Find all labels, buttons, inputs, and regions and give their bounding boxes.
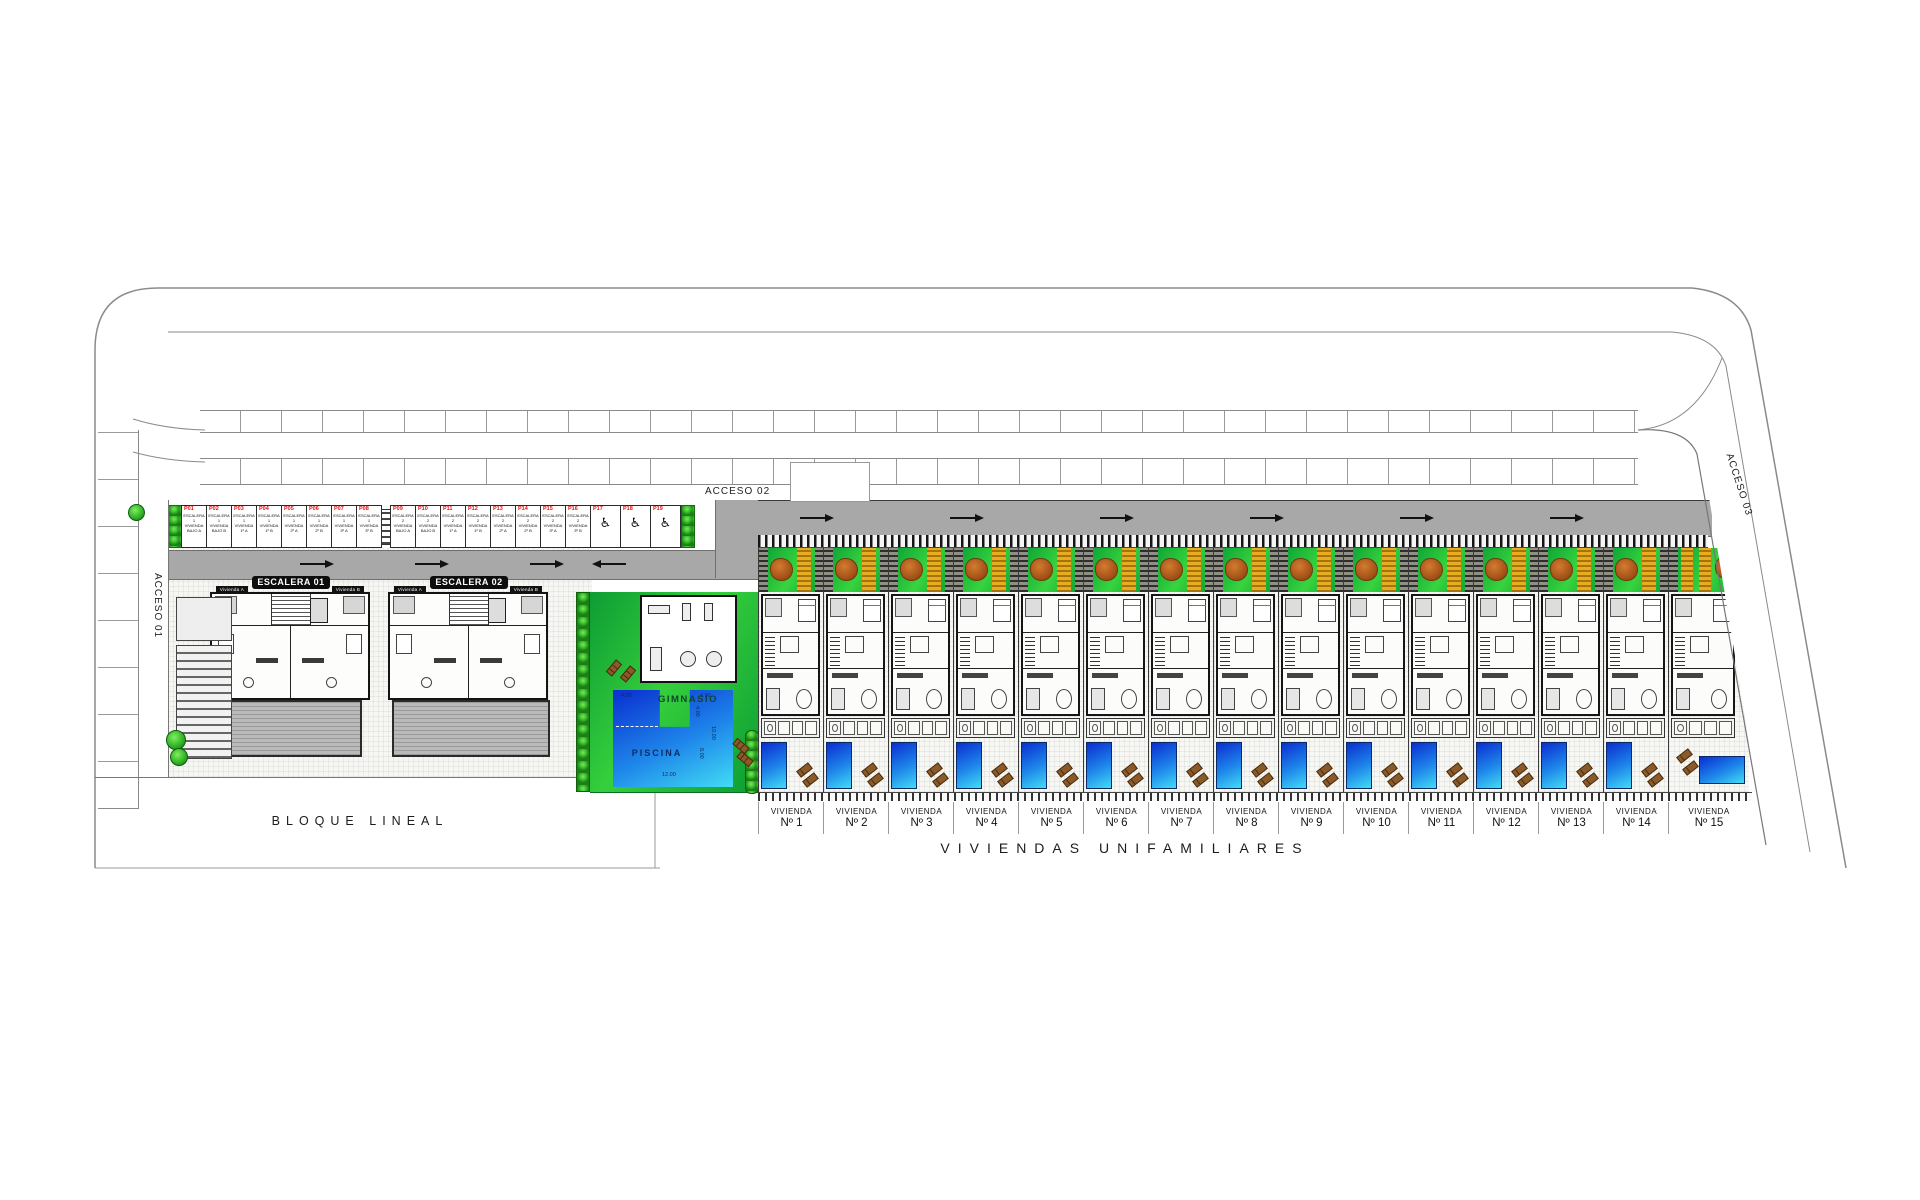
villa-floorplan: [1086, 594, 1145, 716]
paver-strip: [1019, 548, 1028, 592]
tree-icon: [900, 558, 923, 581]
villa-floorplan: [956, 594, 1015, 716]
back-yard: [954, 740, 1019, 792]
villa-unit: [888, 548, 954, 792]
paver-strip: [1539, 548, 1548, 592]
front-fence: [758, 535, 1708, 548]
direction-arrow-icon: [1250, 517, 1276, 519]
villa-name: VIVIENDA: [1096, 807, 1137, 816]
villa-name: VIVIENDA: [1291, 807, 1332, 816]
villa-unit: [1213, 548, 1279, 792]
back-yard: [1539, 740, 1604, 792]
villa-floorplan: [1606, 594, 1665, 716]
direction-arrow-icon: [530, 563, 556, 565]
tree-icon: [1290, 558, 1313, 581]
pergola: [1187, 548, 1201, 592]
tree-icon: [1225, 558, 1248, 581]
direction-arrow-icon: [1550, 517, 1576, 519]
villa-name: VIVIENDA: [1356, 807, 1397, 816]
rear-fence: [758, 792, 1752, 801]
back-yard: [824, 740, 889, 792]
villa-unit: [1278, 548, 1344, 792]
pool-lane-line: [616, 726, 658, 727]
villa-unit: [1018, 548, 1084, 792]
tree-icon: [1160, 558, 1183, 581]
private-pool: [956, 742, 982, 789]
tree-icon: [1485, 558, 1508, 581]
porch: [1086, 718, 1145, 738]
private-pool: [1086, 742, 1112, 789]
villa-name: VIVIENDA: [966, 807, 1007, 816]
pergola: [797, 548, 811, 592]
pergola: [862, 548, 876, 592]
private-pool: [891, 742, 917, 789]
entry-ramp: [790, 462, 870, 502]
vivienda-a-chip: Vivienda A: [394, 586, 426, 593]
porch: [1476, 718, 1535, 738]
back-yard: [1344, 740, 1409, 792]
porch: [1216, 718, 1275, 738]
villa-floorplan: [1151, 594, 1210, 716]
back-yard: [1019, 740, 1084, 792]
bush-icon: [128, 504, 145, 521]
bloque-lineal-title: BLOQUE LINEAL: [170, 814, 550, 828]
piscina-label: PISCINA: [622, 748, 692, 758]
villa-label: VIVIENDA Nº 2: [823, 802, 889, 834]
villa-floorplan: [826, 594, 885, 716]
hedge: [576, 592, 590, 792]
villa-label: VIVIENDA Nº 5: [1018, 802, 1084, 834]
villa-number: Nº 14: [1622, 817, 1651, 829]
tree-icon: [770, 558, 793, 581]
paver-strip: [1149, 548, 1158, 592]
villa-floorplan: [1281, 594, 1340, 716]
private-pool: [826, 742, 852, 789]
back-yard: [1214, 740, 1279, 792]
bush-icon: [170, 748, 188, 766]
paver-strip: [1739, 548, 1749, 592]
porch: [956, 718, 1015, 738]
porch: [1411, 718, 1470, 738]
villa-label: VIVIENDA Nº 9: [1278, 802, 1344, 834]
back-yard: [1149, 740, 1214, 792]
villa-label: VIVIENDA Nº 4: [953, 802, 1019, 834]
villa-name: VIVIENDA: [1421, 807, 1462, 816]
villa-unit: [823, 548, 889, 792]
villa-unit: [1408, 548, 1474, 792]
villa-label: VIVIENDA Nº 8: [1213, 802, 1279, 834]
paver-strip: [1604, 548, 1613, 592]
direction-arrow-icon: [1100, 517, 1126, 519]
villa-number: Nº 15: [1695, 817, 1724, 829]
villa-name: VIVIENDA: [836, 807, 877, 816]
paver-strip: [1409, 548, 1418, 592]
paver-strip: [824, 548, 833, 592]
private-pool: [1411, 742, 1437, 789]
villa-number: Nº 8: [1235, 817, 1257, 829]
pergola: [1577, 548, 1591, 592]
pergola: [1699, 548, 1711, 592]
villa-label: VIVIENDA Nº 14: [1603, 802, 1669, 834]
porch: [1606, 718, 1665, 738]
stair-core: [449, 594, 488, 626]
porch: [1671, 718, 1735, 738]
porch: [1151, 718, 1210, 738]
villa-number: Nº 7: [1170, 817, 1192, 829]
villa-name: VIVIENDA: [1616, 807, 1657, 816]
vivienda-a-chip: Vivienda A: [216, 586, 248, 593]
paver-strip: [1084, 548, 1093, 592]
pool-dim: 4.00: [621, 693, 632, 699]
pergola: [1382, 548, 1396, 592]
villa-floorplan: [1021, 594, 1080, 716]
villa-number: Nº 3: [910, 817, 932, 829]
elevator: [310, 598, 328, 623]
apartment-building-1: [210, 592, 370, 700]
villa-number: Nº 4: [975, 817, 997, 829]
villa-unit: [1343, 548, 1409, 792]
plot-boundary: [95, 777, 612, 778]
porch: [826, 718, 885, 738]
private-pool: [1541, 742, 1567, 789]
escalera-01-label: ESCALERA 01: [252, 576, 330, 589]
villa-unit: [1473, 548, 1539, 792]
private-pool: [761, 742, 787, 789]
pergola: [992, 548, 1006, 592]
villa-name: VIVIENDA: [1551, 807, 1592, 816]
paver-strip: [1344, 548, 1353, 592]
villas-driveway: [758, 500, 1712, 537]
terrace-slab: [392, 700, 550, 757]
tree-icon: [1420, 558, 1443, 581]
apartment-building-2: [388, 592, 548, 700]
porch: [891, 718, 950, 738]
villa-label: VIVIENDA Nº 11: [1408, 802, 1474, 834]
villa-label: VIVIENDA Nº 13: [1538, 802, 1604, 834]
villa-number: Nº 11: [1428, 817, 1456, 829]
private-pool: [1606, 742, 1632, 789]
villa-name: VIVIENDA: [1031, 807, 1072, 816]
private-pool: [1281, 742, 1307, 789]
elevator: [488, 598, 506, 623]
viviendas-unifamiliares-title: VIVIENDAS UNIFAMILIARES: [800, 840, 1450, 856]
pergola: [927, 548, 941, 592]
back-yard: [759, 740, 824, 792]
escalera-02-label: ESCALERA 02: [430, 576, 508, 589]
back-yard: [1279, 740, 1344, 792]
villa-number: Nº 1: [780, 817, 802, 829]
private-pool: [1021, 742, 1047, 789]
villa-floorplan: [1541, 594, 1600, 716]
villa-floorplan: [1346, 594, 1405, 716]
porch: [1281, 718, 1340, 738]
villa-floorplan: [891, 594, 950, 716]
villa-floorplan: [1476, 594, 1535, 716]
pool-dim: 8.00: [698, 748, 704, 759]
tree-icon: [835, 558, 858, 581]
villa-number: Nº 9: [1300, 817, 1322, 829]
villa-number: Nº 6: [1105, 817, 1127, 829]
paver-strip: [954, 548, 963, 592]
pergola: [1057, 548, 1071, 592]
villa-unit: [1538, 548, 1604, 792]
paver-strip: [1669, 548, 1678, 592]
villa-floorplan: [1216, 594, 1275, 716]
porch: [1021, 718, 1080, 738]
pool-dim: 10.00: [710, 726, 716, 740]
bush-icon: [166, 730, 186, 750]
villa-label: VIVIENDA Nº 7: [1148, 802, 1214, 834]
private-pool: [1346, 742, 1372, 789]
back-yard: [1604, 740, 1669, 792]
direction-arrow-icon: [600, 563, 626, 565]
porch: [1541, 718, 1600, 738]
villa-number: Nº 12: [1492, 817, 1521, 829]
paver-strip: [1279, 548, 1288, 592]
paver-strip: [1214, 548, 1223, 592]
pergola: [1642, 548, 1656, 592]
private-pool: [1216, 742, 1242, 789]
villa-unit: [758, 548, 824, 792]
vivienda-b-chip: Vivienda B: [332, 586, 364, 593]
villa-label: VIVIENDA Nº 15: [1668, 802, 1749, 834]
vivienda-b-chip: Vivienda B: [510, 586, 542, 593]
tree-icon: [965, 558, 988, 581]
villa-number: Nº 10: [1362, 817, 1391, 829]
back-yard: [1084, 740, 1149, 792]
villa-number: Nº 5: [1040, 817, 1062, 829]
private-pool: [1699, 756, 1745, 784]
acceso-02-label: ACCESO 02: [705, 486, 770, 497]
tree-icon: [1030, 558, 1053, 581]
gym-building: [640, 595, 737, 683]
private-pool: [1151, 742, 1177, 789]
villa-label: VIVIENDA Nº 6: [1083, 802, 1149, 834]
villa-unit: [953, 548, 1019, 792]
direction-arrow-icon: [950, 517, 976, 519]
villa-label: VIVIENDA Nº 10: [1343, 802, 1409, 834]
tree-icon: [1550, 558, 1573, 581]
tree-icon: [1355, 558, 1378, 581]
pool-dim: 12.00: [662, 772, 676, 778]
tree-icon: [1095, 558, 1118, 581]
villa-name: VIVIENDA: [901, 807, 942, 816]
villa-name: VIVIENDA: [1161, 807, 1202, 816]
villa-unit: [1668, 548, 1749, 792]
porch: [1346, 718, 1405, 738]
pergola: [1317, 548, 1331, 592]
pergola: [1252, 548, 1266, 592]
back-yard: [1669, 740, 1749, 792]
pool-dim: 4.90: [700, 693, 711, 699]
pergola: [1681, 548, 1693, 592]
pergola: [1512, 548, 1526, 592]
villa-floorplan: [761, 594, 820, 716]
tree-icon: [1715, 556, 1738, 579]
private-pool: [1476, 742, 1502, 789]
paver-strip: [1474, 548, 1483, 592]
pergola: [1447, 548, 1461, 592]
stair-core: [271, 594, 310, 626]
villa-unit: [1148, 548, 1214, 792]
villa-floorplan: [1671, 594, 1735, 716]
direction-arrow-icon: [1400, 517, 1426, 519]
storage-room: [176, 597, 232, 641]
villa-label: VIVIENDA Nº 12: [1473, 802, 1539, 834]
pool-dim: 4.00: [694, 706, 700, 717]
villa-floorplan: [1411, 594, 1470, 716]
site-plan: ACCESO 01 BICICLETAS P01ESCALERA 1VIVIEN…: [0, 0, 1920, 1200]
gimnasio-label: GIMNASIO: [618, 694, 758, 705]
pergola: [1122, 548, 1136, 592]
back-yard: [1409, 740, 1474, 792]
back-yard: [1474, 740, 1539, 792]
back-yard: [889, 740, 954, 792]
villa-name: VIVIENDA: [1486, 807, 1527, 816]
villa-name: VIVIENDA: [1226, 807, 1267, 816]
direction-arrow-icon: [300, 563, 326, 565]
villa-name: VIVIENDA: [1688, 807, 1729, 816]
villa-number: Nº 13: [1557, 817, 1586, 829]
villa-number: Nº 2: [845, 817, 867, 829]
paver-strip: [759, 548, 768, 592]
villa-label: VIVIENDA Nº 3: [888, 802, 954, 834]
villa-unit: [1083, 548, 1149, 792]
villa-label: VIVIENDA Nº 1: [758, 802, 824, 834]
tree-icon: [1615, 558, 1638, 581]
direction-arrow-icon: [800, 517, 826, 519]
direction-arrow-icon: [415, 563, 441, 565]
villa-name: VIVIENDA: [771, 807, 812, 816]
villa-unit: [1603, 548, 1669, 792]
porch: [761, 718, 820, 738]
paver-strip: [889, 548, 898, 592]
sun-lounger-icon: [1682, 760, 1699, 776]
